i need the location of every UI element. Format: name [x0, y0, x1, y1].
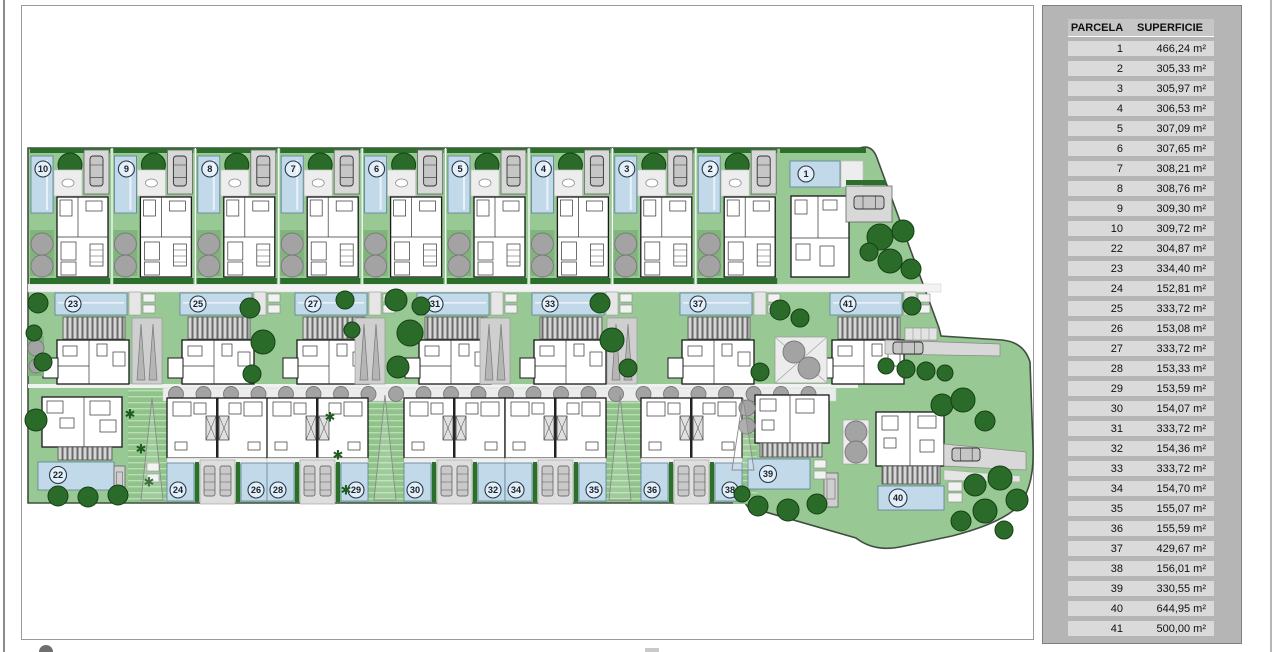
parcel-number-8: 8 — [202, 161, 218, 177]
parcela-cell: 29 — [1068, 383, 1123, 395]
table-row: 9309,30 m² — [1068, 201, 1214, 216]
parcel-number-label: 28 — [273, 485, 283, 495]
table-row: 27333,72 m² — [1068, 341, 1214, 356]
parcel-number-label: 32 — [488, 485, 498, 495]
parcel-number-25: 25 — [190, 296, 206, 312]
site-plan-page: 1098765432123252731333741222426282930323… — [0, 0, 1280, 652]
parcel-number-5: 5 — [452, 161, 468, 177]
superficie-cell: 308,21 m² — [1123, 163, 1206, 175]
parcel-number-33: 33 — [542, 296, 558, 312]
table-row: 38156,01 m² — [1068, 561, 1214, 576]
pool — [748, 459, 810, 489]
table-row: 4306,53 m² — [1068, 101, 1214, 116]
parcela-cell: 26 — [1068, 323, 1123, 335]
table-row: 30154,07 m² — [1068, 401, 1214, 416]
superficie-cell: 333,72 m² — [1123, 303, 1206, 315]
superficie-cell: 153,59 m² — [1123, 383, 1206, 395]
table-header-row: PARCELA SUPERFICIE — [1068, 19, 1214, 37]
superficie-cell: 154,70 m² — [1123, 483, 1206, 495]
parcela-cell: 9 — [1068, 203, 1123, 215]
parcela-cell: 5 — [1068, 123, 1123, 135]
parcela-cell: 3 — [1068, 83, 1123, 95]
table-row: 40644,95 m² — [1068, 601, 1214, 616]
superficie-cell: 309,30 m² — [1123, 203, 1206, 215]
parcel-number-label: 2 — [708, 164, 713, 174]
superficie-cell: 155,07 m² — [1123, 503, 1206, 515]
table-row: 7308,21 m² — [1068, 161, 1214, 176]
superficie-cell: 306,53 m² — [1123, 103, 1206, 115]
superficie-cell: 153,08 m² — [1123, 323, 1206, 335]
palm-icon: ✱ — [125, 406, 136, 421]
parcela-cell: 40 — [1068, 603, 1123, 615]
parcel-number-label: 33 — [545, 299, 555, 309]
superficie-cell: 156,01 m² — [1123, 563, 1206, 575]
parcel-number-label: 34 — [511, 485, 522, 495]
parcel-number-39: 39 — [760, 466, 777, 483]
superficie-cell: 308,76 m² — [1123, 183, 1206, 195]
parcel-number-label: 29 — [351, 485, 361, 495]
parcel-number-label: 5 — [457, 164, 462, 174]
parcel-number-27: 27 — [305, 296, 321, 312]
parcela-cell: 33 — [1068, 463, 1123, 475]
parcela-cell: 38 — [1068, 563, 1123, 575]
superficie-cell: 304,87 m² — [1123, 243, 1206, 255]
parcel-table: PARCELA SUPERFICIE 1466,24 m²2305,33 m²3… — [1068, 19, 1214, 636]
superficie-cell: 307,65 m² — [1123, 143, 1206, 155]
superficie-cell: 153,33 m² — [1123, 363, 1206, 375]
col-header-parcela: PARCELA — [1068, 22, 1126, 34]
parcel-number-label: 30 — [410, 485, 420, 495]
superficie-cell: 644,95 m² — [1123, 603, 1206, 615]
plaza — [775, 337, 827, 383]
superficie-cell: 305,33 m² — [1123, 63, 1206, 75]
parcel-number-10: 10 — [35, 161, 51, 177]
parcela-cell: 36 — [1068, 523, 1123, 535]
parcela-cell: 28 — [1068, 363, 1123, 375]
pool — [878, 486, 944, 510]
superficie-cell: 305,97 m² — [1123, 83, 1206, 95]
parcela-cell: 10 — [1068, 223, 1123, 235]
table-row: 5307,09 m² — [1068, 121, 1214, 136]
parcel-number-4: 4 — [535, 161, 551, 177]
duplex-block-30-32: 3032 — [404, 398, 505, 504]
house-footprint — [57, 340, 129, 384]
parcel-number-7: 7 — [285, 161, 301, 177]
parcel-number-label: 41 — [843, 299, 853, 309]
parcela-cell: 25 — [1068, 303, 1123, 315]
table-row: 24152,81 m² — [1068, 281, 1214, 296]
parcel-number-label: 26 — [251, 485, 261, 495]
site-layers: 1098765432123252731333741222426282930323… — [25, 147, 1033, 548]
parcela-cell: 6 — [1068, 143, 1123, 155]
palm-icon: ✱ — [333, 447, 344, 462]
parcel-number-22: 22 — [50, 467, 67, 484]
parcel-number-36: 36 — [644, 482, 660, 498]
parcela-cell: 2 — [1068, 63, 1123, 75]
parcel-number-32: 32 — [485, 482, 501, 498]
parcel-number-label: 36 — [647, 485, 657, 495]
page-left-border — [3, 0, 5, 652]
parcela-cell: 34 — [1068, 483, 1123, 495]
superficie-cell: 334,40 m² — [1123, 263, 1206, 275]
table-row: 8308,76 m² — [1068, 181, 1214, 196]
parcel-number-label: 3 — [624, 164, 629, 174]
table-row: 3305,97 m² — [1068, 81, 1214, 96]
superficie-cell: 333,72 m² — [1123, 423, 1206, 435]
superficie-cell: 154,07 m² — [1123, 403, 1206, 415]
parcel-number-label: 25 — [193, 299, 203, 309]
parcel-number-label: 8 — [207, 164, 212, 174]
stair-pad — [480, 318, 510, 384]
superficie-cell: 333,72 m² — [1123, 343, 1206, 355]
superficie-cell: 309,72 m² — [1123, 223, 1206, 235]
duplex-block-28-29: 2829 — [267, 398, 368, 504]
parcela-cell: 35 — [1068, 503, 1123, 515]
table-row: 2305,33 m² — [1068, 61, 1214, 76]
parcela-cell: 39 — [1068, 583, 1123, 595]
page-right-border — [1270, 0, 1272, 652]
parcel-number-label: 6 — [374, 164, 379, 174]
palm-icon: ✱ — [325, 409, 336, 424]
parcel-number-35: 35 — [586, 482, 602, 498]
duplex-block-34-35: 3435 — [505, 398, 606, 504]
parcela-cell: 4 — [1068, 103, 1123, 115]
parcela-cell: 41 — [1068, 623, 1123, 635]
parcel-number-label: 40 — [893, 493, 903, 503]
table-row: 32154,36 m² — [1068, 441, 1214, 456]
parcel-number-28: 28 — [270, 482, 286, 498]
parcel-number-40: 40 — [889, 489, 907, 507]
superficie-cell: 466,24 m² — [1123, 43, 1206, 55]
table-row: 25333,72 m² — [1068, 301, 1214, 316]
superficie-cell: 500,00 m² — [1123, 623, 1206, 635]
parcel-number-label: 35 — [589, 485, 599, 495]
superficie-cell: 429,67 m² — [1123, 543, 1206, 555]
parcel-number-label: 22 — [53, 470, 63, 480]
parcel-table-panel: PARCELA SUPERFICIE 1466,24 m²2305,33 m²3… — [1042, 5, 1242, 644]
house-footprint — [534, 340, 606, 384]
table-row: 10309,72 m² — [1068, 221, 1214, 236]
superficie-cell: 152,81 m² — [1123, 283, 1206, 295]
duplex-block-36-38: 3638 — [641, 398, 742, 504]
parcel-number-label: 23 — [68, 299, 78, 309]
parcel-number-label: 24 — [173, 485, 184, 495]
parcel-number-label: 1 — [803, 169, 808, 179]
parcel-number-label: 39 — [763, 469, 773, 479]
table-row: 28153,33 m² — [1068, 361, 1214, 376]
col-header-superficie: SUPERFICIE — [1126, 22, 1214, 34]
table-row: 1466,24 m² — [1068, 41, 1214, 56]
palm-icon: ✱ — [136, 441, 147, 456]
parcela-cell: 37 — [1068, 543, 1123, 555]
parcel-number-label: 37 — [693, 299, 703, 309]
table-row: 33333,72 m² — [1068, 461, 1214, 476]
cropped-logo-mark — [39, 645, 53, 652]
parcela-cell: 23 — [1068, 263, 1123, 275]
table-row: 22304,87 m² — [1068, 241, 1214, 256]
superficie-cell: 155,59 m² — [1123, 523, 1206, 535]
parcel-number-9: 9 — [118, 161, 134, 177]
parcel-number-30: 30 — [407, 482, 423, 498]
table-row: 29153,59 m² — [1068, 381, 1214, 396]
parcela-cell: 24 — [1068, 283, 1123, 295]
parcel-number-label: 31 — [430, 299, 440, 309]
parcela-cell: 32 — [1068, 443, 1123, 455]
parcel-number-41: 41 — [840, 296, 856, 312]
table-row: 6307,65 m² — [1068, 141, 1214, 156]
parcela-cell: 7 — [1068, 163, 1123, 175]
house-footprint — [682, 340, 754, 384]
parcel-number-3: 3 — [619, 161, 635, 177]
parcel-number-6: 6 — [369, 161, 385, 177]
parcela-cell: 8 — [1068, 183, 1123, 195]
parcel-number-2: 2 — [702, 161, 718, 177]
parcel-number-label: 9 — [124, 164, 129, 174]
duplex-block-24-26: 2426 — [167, 398, 268, 504]
superficie-cell: 333,72 m² — [1123, 463, 1206, 475]
table-row: 37429,67 m² — [1068, 541, 1214, 556]
parcel-number-34: 34 — [508, 482, 524, 498]
superficie-cell: 307,09 m² — [1123, 123, 1206, 135]
table-row: 35155,07 m² — [1068, 501, 1214, 516]
parcel-number-37: 37 — [690, 296, 706, 312]
house-footprint — [755, 395, 829, 443]
table-row: 39330,55 m² — [1068, 581, 1214, 596]
superficie-cell: 154,36 m² — [1123, 443, 1206, 455]
parcel-number-label: 27 — [308, 299, 318, 309]
parcel-number-23: 23 — [65, 296, 81, 312]
table-row: 26153,08 m² — [1068, 321, 1214, 336]
parcela-cell: 31 — [1068, 423, 1123, 435]
table-row: 36155,59 m² — [1068, 521, 1214, 536]
cropped-edge-mark — [645, 648, 659, 652]
parcel-number-26: 26 — [248, 482, 264, 498]
palm-icon: ✱ — [341, 482, 352, 497]
table-row: 23334,40 m² — [1068, 261, 1214, 276]
parcel-number-label: 10 — [38, 164, 48, 174]
parcela-cell: 22 — [1068, 243, 1123, 255]
table-body: 1466,24 m²2305,33 m²3305,97 m²4306,53 m²… — [1068, 41, 1214, 636]
parcela-cell: 1 — [1068, 43, 1123, 55]
parcela-cell: 30 — [1068, 403, 1123, 415]
superficie-cell: 330,55 m² — [1123, 583, 1206, 595]
duplex-row: 24262829303234353638 — [167, 398, 742, 504]
parcel-number-24: 24 — [170, 482, 186, 498]
stair-pad — [132, 318, 162, 384]
parcel-number-label: 4 — [541, 164, 547, 174]
parcel-number-1: 1 — [798, 166, 814, 182]
parcel-number-label: 7 — [291, 164, 296, 174]
parcela-cell: 27 — [1068, 343, 1123, 355]
table-row: 31333,72 m² — [1068, 421, 1214, 436]
table-row: 41500,00 m² — [1068, 621, 1214, 636]
table-row: 34154,70 m² — [1068, 481, 1214, 496]
